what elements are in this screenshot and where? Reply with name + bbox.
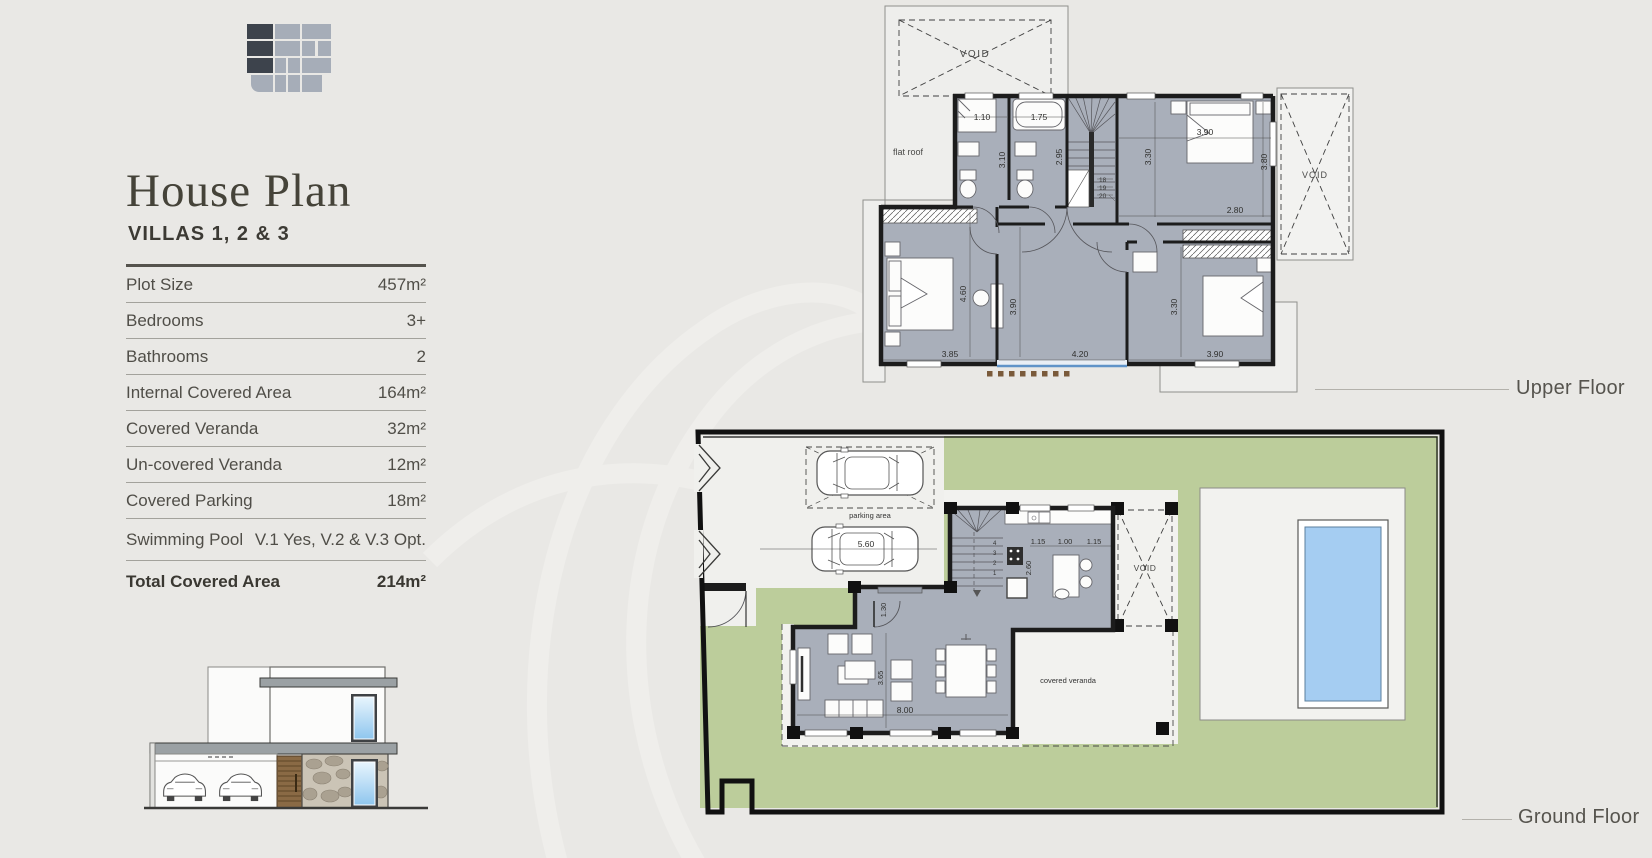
svg-text:1.15: 1.15 <box>1087 537 1102 546</box>
spec-value: 18m² <box>387 491 426 511</box>
spec-value: 3+ <box>407 311 426 331</box>
spec-table: Plot Size 457m² Bedrooms 3+ Bathrooms 2 … <box>126 264 426 603</box>
spec-row-swimming-pool: Swimming Pool V.1 Yes, V.2 & V.3 Opt. <box>126 519 426 561</box>
svg-text:parking area: parking area <box>849 511 892 520</box>
spec-row-bathrooms: Bathrooms 2 <box>126 339 426 375</box>
developer-logo <box>247 24 331 94</box>
spec-row-plot-size: Plot Size 457m² <box>126 267 426 303</box>
spec-row-internal-area: Internal Covered Area 164m² <box>126 375 426 411</box>
spec-value: 2 <box>417 347 426 367</box>
spec-value: 457m² <box>378 275 426 295</box>
entrance-door <box>277 756 302 808</box>
spec-label: Un-covered Veranda <box>126 455 282 475</box>
svg-text:VOID: VOID <box>1302 170 1328 180</box>
spec-value: 32m² <box>387 419 426 439</box>
spec-label: Covered Veranda <box>126 419 258 439</box>
spec-row-covered-parking: Covered Parking 18m² <box>126 483 426 519</box>
svg-text:VOID: VOID <box>1134 563 1157 573</box>
spec-label: Bedrooms <box>126 311 203 331</box>
svg-text:4.20: 4.20 <box>1072 349 1089 359</box>
lower-window <box>351 759 378 808</box>
spec-label: Plot Size <box>126 275 193 295</box>
spec-value: V.1 Yes, V.2 & V.3 Opt. <box>255 530 426 550</box>
svg-text:1.15: 1.15 <box>1031 537 1046 546</box>
spec-row-bedrooms: Bedrooms 3+ <box>126 303 426 339</box>
spec-label: Covered Parking <box>126 491 253 511</box>
svg-text:3.90: 3.90 <box>1197 127 1214 137</box>
svg-text:8.00: 8.00 <box>897 705 914 715</box>
spec-label: Internal Covered Area <box>126 383 291 403</box>
spec-label: Bathrooms <box>126 347 208 367</box>
svg-text:1.10: 1.10 <box>974 112 991 122</box>
spec-total-value: 214m² <box>377 572 426 592</box>
spec-total-label: Total Covered Area <box>126 572 280 592</box>
svg-text:1.75: 1.75 <box>1031 112 1048 122</box>
svg-text:3.30: 3.30 <box>1143 148 1153 165</box>
side-void: VOID <box>1277 88 1353 260</box>
svg-text:3.80: 3.80 <box>1259 153 1269 170</box>
svg-text:2.95: 2.95 <box>1054 148 1064 165</box>
spec-row-uncovered-veranda: Un-covered Veranda 12m² <box>126 447 426 483</box>
page-title: House Plan <box>126 164 351 218</box>
spec-value: 164m² <box>378 383 426 403</box>
entry-door-dim: 1.30 <box>879 603 888 618</box>
svg-text:4.60: 4.60 <box>958 285 968 302</box>
svg-text:3.90: 3.90 <box>1207 349 1224 359</box>
svg-text:2.80: 2.80 <box>1227 205 1244 215</box>
svg-text:3.90: 3.90 <box>1008 298 1018 315</box>
page-subtitle: VILLAS 1, 2 & 3 <box>128 223 290 246</box>
ground-floor-leader-line <box>1462 819 1512 820</box>
svg-text:19: 19 <box>1099 185 1107 192</box>
ground-floor-plan: parking area 5.60 VOID 4 3 2 1 <box>690 428 1454 822</box>
svg-text:3.65: 3.65 <box>876 671 885 686</box>
spec-label: Swimming Pool <box>126 530 243 550</box>
svg-text:1.00: 1.00 <box>1058 537 1073 546</box>
svg-text:20: 20 <box>1099 193 1107 200</box>
pool-area <box>1200 488 1405 720</box>
upper-floor-leader-line <box>1315 389 1509 390</box>
upper-floor-plan: VOID flat roof VOID 18 19 2 <box>815 2 1375 394</box>
plan-sheet: House Plan VILLAS 1, 2 & 3 Plot Size 457… <box>0 0 1652 858</box>
front-elevation-drawing <box>138 624 433 816</box>
spec-value: 12m² <box>387 455 426 475</box>
svg-text:5.60: 5.60 <box>858 539 875 549</box>
flat-roof-label: flat roof <box>893 147 924 157</box>
spec-row-total: Total Covered Area 214m² <box>126 561 426 603</box>
balcony-railing <box>987 371 1070 377</box>
upper-floor-caption: Upper Floor <box>1516 377 1625 400</box>
svg-text:18: 18 <box>1099 177 1107 184</box>
veranda-label: covered veranda <box>1040 676 1097 685</box>
svg-text:3.85: 3.85 <box>942 349 959 359</box>
svg-text:2.60: 2.60 <box>1024 561 1033 576</box>
svg-text:VOID: VOID <box>960 49 990 60</box>
svg-text:3.10: 3.10 <box>997 151 1007 168</box>
ground-floor-caption: Ground Floor <box>1518 806 1639 829</box>
spec-row-covered-veranda: Covered Veranda 32m² <box>126 411 426 447</box>
svg-text:3.30: 3.30 <box>1169 298 1179 315</box>
upper-window <box>351 694 377 742</box>
